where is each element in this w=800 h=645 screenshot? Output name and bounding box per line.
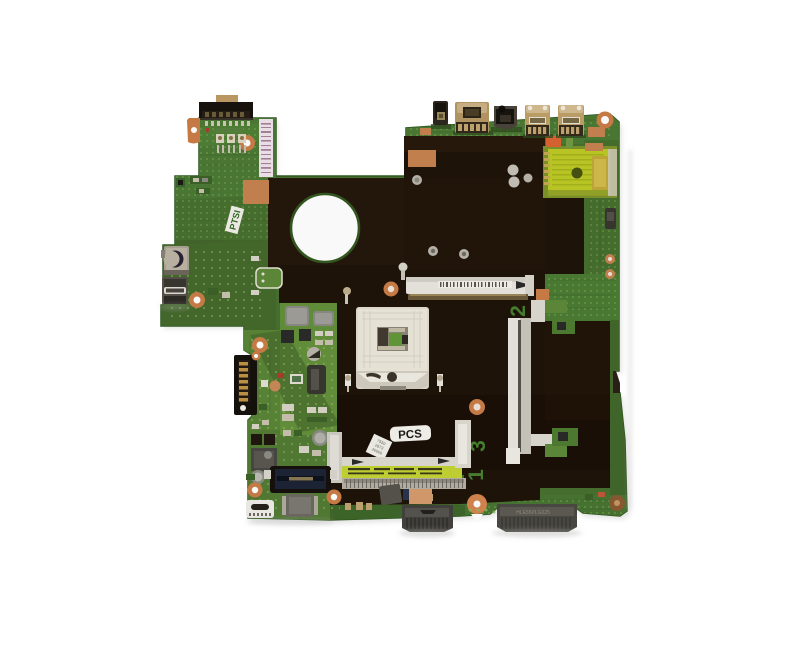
svg-text:PCS: PCS: [398, 428, 423, 441]
svg-text:1: 1: [465, 469, 488, 481]
svg-text:HLE55PLG025: HLE55PLG025: [516, 510, 550, 516]
svg-text:2: 2: [507, 305, 530, 317]
